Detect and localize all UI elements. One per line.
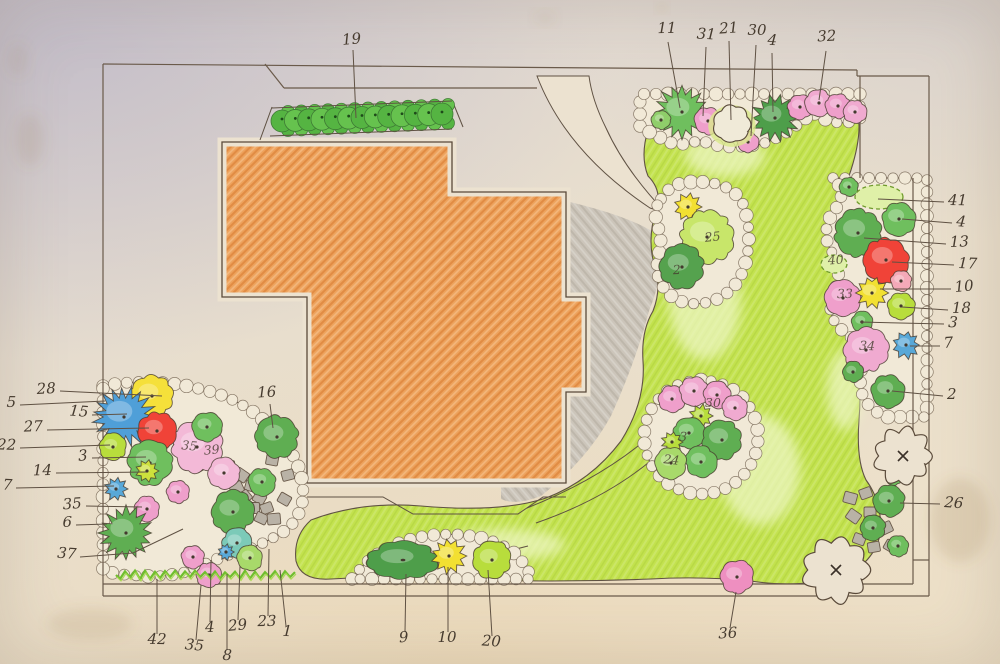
- hedge-center-dot: [387, 113, 390, 116]
- planting-center-dot: [699, 460, 702, 463]
- shrub-highlight: [110, 519, 133, 537]
- bed-edging-plant: [510, 573, 522, 585]
- bed-edging-plant: [684, 175, 698, 189]
- bed-edging-plant: [921, 186, 933, 198]
- bed-edging-plant: [921, 198, 933, 210]
- bed-edging-plant: [922, 331, 933, 342]
- planting-center-dot: [720, 438, 723, 441]
- shrub-highlight: [139, 502, 151, 512]
- shrub-highlight: [680, 200, 692, 210]
- bed-edging-plant: [257, 538, 268, 549]
- bed-edging-plant: [638, 437, 651, 450]
- hedge-center-dot: [307, 116, 310, 119]
- in-bed-number: 2: [671, 262, 681, 277]
- planting-center-dot: [122, 415, 125, 418]
- plant-number-label: 11: [657, 19, 676, 37]
- plant-number-label: 29: [226, 615, 248, 635]
- plant-symbol: [248, 469, 276, 497]
- shrub-highlight: [214, 464, 229, 476]
- shrub-highlight: [480, 549, 498, 563]
- bed-edging-plant: [829, 316, 839, 326]
- hedge-center-dot: [361, 114, 364, 117]
- planting-center-dot: [836, 104, 839, 107]
- bed-edging-plant: [905, 410, 919, 424]
- plant-symbol: [860, 515, 886, 541]
- bed-edging-plant: [709, 87, 723, 101]
- bed-edging-plant: [441, 529, 451, 539]
- planting-center-dot: [231, 510, 234, 513]
- plant-number-label: 13: [950, 232, 970, 251]
- shrub-highlight: [171, 485, 182, 494]
- hedge-center-dot: [294, 117, 297, 120]
- plant-number-label: 14: [33, 461, 52, 479]
- in-bed-number: 33: [837, 286, 853, 301]
- plant-number-label: 16: [257, 382, 277, 401]
- bed-edging-plant: [743, 246, 753, 256]
- planting-center-dot: [847, 185, 850, 188]
- bed-edging-plant: [464, 530, 476, 542]
- bed-edging-plant: [921, 366, 934, 379]
- bed-edging-plant: [696, 488, 708, 500]
- plant-number-label: 3: [77, 446, 88, 465]
- shrub-highlight: [138, 384, 158, 400]
- hedge-center-dot: [427, 111, 430, 114]
- garden-plan-canvas: 1911312130432414131710183722628515272231…: [0, 0, 1000, 664]
- planting-center-dot: [817, 101, 820, 104]
- bed-edging-plant: [760, 138, 770, 148]
- planting-center-dot: [856, 231, 859, 234]
- planting-center-dot: [124, 531, 127, 534]
- hedge-center-dot: [441, 111, 444, 114]
- shrub-highlight: [242, 551, 254, 561]
- planting-center-dot: [145, 507, 148, 510]
- bed-edging-plant: [416, 531, 428, 543]
- bed-edging-plant: [121, 377, 132, 388]
- leader-line: [268, 549, 269, 616]
- bed-edging-plant: [428, 529, 440, 541]
- planting-center-dot: [886, 389, 889, 392]
- bed-edging-plant: [516, 556, 528, 568]
- shrub-highlight: [109, 483, 119, 491]
- bed-edging-plant: [673, 178, 686, 191]
- bed-edging-plant: [450, 573, 462, 585]
- walkway-line: [260, 107, 272, 140]
- planting-center-dot: [275, 435, 278, 438]
- plant-number-label: 7: [2, 476, 13, 494]
- plant-number-label: 19: [341, 29, 362, 49]
- planting-center-dot: [692, 389, 695, 392]
- planting-center-dot: [686, 205, 689, 208]
- label-36-39: 36: [718, 592, 738, 642]
- bed-edging-plant: [452, 529, 463, 540]
- bed-edging-plant: [821, 235, 833, 247]
- bed-edging-plant: [921, 354, 933, 366]
- bed-edging-plant: [748, 411, 761, 424]
- plant-number-label: 8: [222, 646, 232, 664]
- shrub-highlight: [666, 98, 689, 116]
- plant-number-label: 10: [437, 628, 457, 646]
- shrub-highlight: [727, 401, 739, 411]
- planting-center-dot: [899, 279, 902, 282]
- planting-center-dot: [224, 550, 227, 553]
- planting-center-dot: [735, 575, 738, 578]
- shrub-highlight: [439, 547, 454, 559]
- shrub-highlight: [872, 247, 893, 264]
- leader-line: [20, 445, 110, 448]
- bed-edging-plant: [738, 468, 750, 480]
- bed-edging-plant: [922, 379, 932, 389]
- bed-edging-plant: [689, 137, 700, 148]
- planting-center-dot: [871, 526, 874, 529]
- shrub-highlight: [848, 105, 859, 114]
- bed-edging-plant: [740, 209, 754, 223]
- bed-edging-plant: [650, 88, 661, 99]
- planting-center-dot: [401, 559, 406, 562]
- bed-edging-plant: [268, 533, 278, 543]
- shrub-highlight: [865, 521, 877, 531]
- planting-center-dot: [235, 541, 238, 544]
- bed-edging-plant: [711, 293, 723, 305]
- planting-center-dot: [884, 258, 887, 261]
- paper-stain: [8, 44, 28, 76]
- planting-center-dot: [111, 445, 114, 448]
- bed-edging-plant: [427, 574, 437, 584]
- bed-edging-plant: [752, 435, 764, 447]
- shrub-highlight: [843, 219, 865, 237]
- plant-number-label: 28: [35, 379, 56, 398]
- bed-edging-plant: [654, 234, 667, 247]
- shrub-highlight: [879, 492, 894, 504]
- bed-edging-plant: [204, 385, 216, 397]
- plant-symbol: [720, 560, 753, 594]
- plant-number-label: 22: [0, 435, 16, 454]
- bed-edging-plant: [295, 471, 309, 485]
- bed-edging-plant: [745, 87, 759, 101]
- plant-number-label: 1: [282, 622, 292, 640]
- planting-center-dot: [447, 554, 450, 557]
- plant-number-label: 37: [57, 544, 78, 563]
- bed-edging-plant: [864, 173, 875, 184]
- bed-edging-plant: [922, 175, 933, 186]
- shrub-highlight: [761, 106, 781, 122]
- plant-symbol: [237, 545, 263, 571]
- bed-edging-plant: [821, 224, 832, 235]
- bed-edging-plant: [277, 525, 289, 537]
- bed-edging-plant: [835, 324, 848, 337]
- hedge-center-dot: [334, 115, 337, 118]
- in-bed-number: 3: [679, 429, 688, 444]
- plant-number-label: 4: [766, 31, 778, 50]
- shrub-highlight: [792, 100, 804, 110]
- stepping-stone: [267, 513, 281, 525]
- leader-line: [238, 566, 240, 620]
- plant-number-label: 27: [22, 417, 43, 436]
- plant-number-label: 4: [955, 212, 967, 231]
- plant-number-label: 26: [943, 493, 965, 512]
- bed-edging-plant: [862, 399, 874, 411]
- planting-center-dot: [176, 490, 179, 493]
- planting-center-dot: [687, 431, 690, 434]
- plant-symbol: [708, 105, 756, 147]
- planting-center-dot: [248, 556, 251, 559]
- plant-number-label: 15: [69, 401, 90, 421]
- paper-stain: [930, 478, 990, 562]
- bed-edging-plant: [922, 343, 932, 353]
- bed-edging-plant: [642, 450, 652, 460]
- bed-edging-plant: [749, 447, 762, 460]
- planting-center-dot: [155, 429, 158, 432]
- shrub-highlight: [684, 382, 698, 393]
- bed-edging-plant: [297, 484, 309, 496]
- plant-symbol: [839, 177, 858, 196]
- planting-center-dot: [870, 291, 873, 294]
- plant-number-label: 2: [946, 385, 957, 403]
- boundary-line: [103, 64, 857, 70]
- bed-edging-plant: [921, 234, 934, 247]
- planting-center-dot: [896, 544, 899, 547]
- planting-center-dot: [222, 471, 225, 474]
- bed-edging-plant: [719, 483, 731, 495]
- shrub-highlight: [894, 275, 904, 283]
- bed-edging-plant: [920, 389, 934, 403]
- planting-center-dot: [191, 555, 194, 558]
- label-22-21: 22: [0, 435, 110, 454]
- hedge-center-dot: [374, 114, 377, 117]
- plant-number-label: 6: [62, 513, 72, 531]
- bed-edging-plant: [739, 256, 753, 270]
- bed-edging-plant: [920, 281, 933, 294]
- bed-edging-plant: [634, 108, 647, 121]
- bed-edging-plant: [652, 223, 664, 235]
- shrub-highlight: [888, 209, 904, 222]
- shrub-highlight: [709, 428, 728, 443]
- stepping-stone: [867, 541, 881, 553]
- shrub-highlight: [898, 338, 910, 348]
- plant-number-label: 42: [146, 630, 166, 648]
- shrub-highlight: [877, 381, 893, 394]
- bed-edging-plant: [696, 175, 709, 188]
- bed-edging-plant: [180, 379, 194, 393]
- bed-edging-plant: [722, 88, 734, 100]
- plant-number-label: 32: [817, 27, 837, 46]
- planting-center-dot: [490, 558, 493, 561]
- planting-center-dot: [699, 414, 702, 417]
- shrub-highlight: [810, 95, 823, 105]
- bed-edging-plant: [641, 414, 652, 425]
- shrub-highlight: [263, 425, 283, 441]
- plant-number-label: 5: [6, 393, 16, 411]
- planting-center-dot: [851, 370, 854, 373]
- plant-symbol: [873, 485, 905, 517]
- in-bed-number: 39: [203, 441, 220, 457]
- planting-center-dot: [733, 406, 736, 409]
- shrub-highlight: [666, 436, 675, 443]
- bed-edging-plant: [646, 403, 658, 415]
- planting-center-dot: [680, 110, 683, 113]
- planting-center-dot: [670, 397, 673, 400]
- bed-edging-plant: [657, 281, 669, 293]
- shrub-highlight: [862, 284, 876, 295]
- shrub-highlight: [846, 366, 856, 374]
- garden-plan-paper: 1911312130432414131710183722628515272231…: [0, 0, 1000, 664]
- bed-edging-plant: [215, 389, 227, 401]
- in-bed-number: 25: [703, 228, 721, 245]
- planting-center-dot: [904, 343, 907, 346]
- plant-number-label: 9: [398, 628, 409, 647]
- paper-stain: [16, 114, 44, 166]
- hedge-center-dot: [414, 112, 417, 115]
- plant-symbol: [166, 480, 189, 503]
- plant-number-label: 35: [184, 635, 205, 655]
- shrub-highlight: [830, 99, 842, 109]
- shrub-highlight: [663, 391, 676, 401]
- shrub-highlight: [891, 540, 901, 548]
- shrub-highlight: [227, 534, 241, 545]
- planting-center-dot: [853, 110, 856, 113]
- hedge-center-dot: [281, 118, 284, 121]
- plant-number-label: 21: [718, 18, 739, 37]
- shrub-highlight: [219, 500, 239, 516]
- label-42-29: 42: [146, 579, 166, 648]
- leader-line: [20, 401, 105, 405]
- shrub-highlight: [104, 439, 117, 449]
- shrub-highlight: [253, 474, 266, 484]
- shrub-highlight: [197, 418, 211, 429]
- plant-number-label: 35: [62, 494, 82, 513]
- bed-edging-plant: [677, 138, 689, 150]
- in-bed-number: 35: [181, 437, 198, 453]
- bed-edging-plant: [738, 198, 749, 209]
- planting-center-dot: [205, 425, 208, 428]
- planting-center-dot: [659, 118, 662, 121]
- bed-edging-plant: [751, 423, 765, 437]
- hedge-center-dot: [401, 112, 404, 115]
- leader-line: [730, 592, 736, 628]
- bed-edging-plant: [684, 486, 697, 499]
- bed-edging-plant: [688, 299, 698, 309]
- bed-edging-plant: [742, 233, 755, 246]
- bed-edging-plant: [759, 89, 770, 100]
- label-1-35: 1: [280, 570, 292, 640]
- shrub-highlight: [381, 549, 414, 563]
- bed-edging-plant: [109, 378, 122, 391]
- bed-edging-plant: [876, 173, 887, 184]
- leader-line: [196, 585, 201, 640]
- in-bed-number: 40: [826, 251, 844, 267]
- bed-edging-plant: [652, 200, 663, 211]
- bed-edging-plant: [709, 178, 720, 189]
- bed-edging-plant: [700, 298, 711, 309]
- plant-number-label: 41: [947, 191, 967, 209]
- paper-stain: [657, 4, 667, 12]
- planting-center-dot: [887, 499, 890, 502]
- bed-edging-plant: [919, 412, 929, 422]
- bed-edging-plant: [888, 173, 898, 183]
- bed-edging-plant: [193, 383, 204, 394]
- bed-edging-plant: [523, 574, 533, 584]
- bed-edging-plant: [735, 89, 745, 99]
- in-bed-number: 24: [662, 451, 680, 468]
- hedge-center-dot: [321, 116, 324, 119]
- bed-edging-plant: [921, 222, 932, 233]
- bed-edging-plant: [743, 222, 753, 232]
- hedge-plant: [431, 103, 453, 125]
- bed-edging-plant: [296, 496, 308, 508]
- plant-number-label: 10: [954, 276, 975, 296]
- plant-number-label: 31: [696, 25, 716, 44]
- plant-number-label: 30: [747, 21, 767, 39]
- plant-number-label: 7: [943, 333, 954, 352]
- plant-number-label: 36: [718, 623, 738, 642]
- bed-edging-plant: [227, 394, 238, 405]
- shrub-highlight: [694, 410, 704, 418]
- in-bed-number: 34: [859, 338, 875, 354]
- planting-center-dot: [798, 105, 801, 108]
- bed-edging-plant: [673, 484, 684, 495]
- shrub-highlight: [726, 567, 742, 580]
- shrub-highlight: [691, 453, 706, 465]
- paper-stain: [48, 608, 132, 640]
- hedge-center-dot: [347, 115, 350, 118]
- shrub-highlight: [843, 181, 852, 188]
- bed-edging-plant: [354, 565, 364, 575]
- shrub-highlight: [145, 420, 163, 434]
- planting-center-dot: [773, 116, 776, 119]
- bed-edging-plant: [921, 246, 932, 257]
- plant-number-label: 20: [480, 631, 502, 650]
- bed-edging-plant: [856, 388, 868, 400]
- in-bed-number: 30: [705, 395, 721, 410]
- clipped-hedge: [270, 99, 455, 137]
- bed-edging-plant: [638, 425, 651, 438]
- bed-edging-plant: [899, 172, 911, 184]
- plant-number-label: 3: [948, 313, 958, 331]
- bed-edging-plant: [921, 270, 934, 283]
- bed-edging-plant: [638, 88, 649, 99]
- paper-stain: [535, 12, 555, 24]
- bed-edging-plant: [830, 201, 842, 213]
- bed-edging-plant: [649, 210, 662, 223]
- bed-edging-plant: [293, 507, 305, 519]
- plant-number-label: 23: [256, 612, 276, 630]
- bed-edging-plant: [922, 295, 933, 306]
- plant-number-label: 4: [204, 618, 215, 636]
- plant-symbol: [887, 536, 908, 557]
- shrub-highlight: [106, 401, 132, 422]
- bed-edging-plant: [708, 486, 720, 498]
- planting-center-dot: [680, 265, 683, 268]
- bed-edging-plant: [700, 137, 711, 148]
- planting-center-dot: [670, 440, 673, 443]
- planting-center-dot: [114, 487, 117, 490]
- boundary-line: [265, 64, 284, 88]
- planting-center-dot: [897, 217, 900, 220]
- bed-edging-plant: [745, 459, 757, 471]
- plant-number-label: 17: [958, 254, 978, 273]
- shrub-highlight: [655, 114, 664, 121]
- shrub-highlight: [186, 550, 197, 559]
- planting-center-dot: [260, 480, 263, 483]
- shrub-highlight: [855, 316, 865, 324]
- bed-edging-plant: [355, 574, 365, 584]
